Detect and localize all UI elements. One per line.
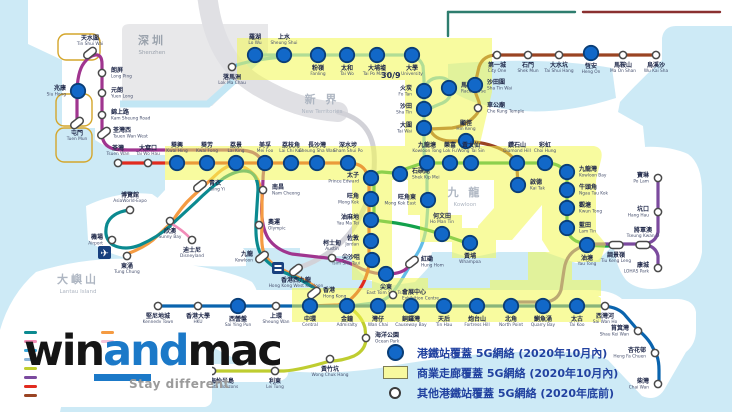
station-name-en: Shek Kip Mei xyxy=(412,175,440,181)
station-name-zh: 南昌 xyxy=(272,183,284,191)
logo-and: and xyxy=(103,326,187,376)
legend-label: 商業走廊覆蓋 5G網絡 (2020年10月內) xyxy=(417,365,618,381)
station-name-zh: 旺角 xyxy=(347,192,359,200)
station-name-en: Wong Tai Sin xyxy=(457,148,484,154)
station-name-zh: 香港西九龍 xyxy=(280,276,311,284)
station-name-zh: 火炭 xyxy=(400,84,412,92)
station-name-zh: 利東 xyxy=(268,377,281,385)
station-name-en: Admiralty xyxy=(337,322,358,328)
station-name-en: Sunny Bay xyxy=(159,234,182,240)
region-label: 新 界 xyxy=(305,92,340,106)
station-name-zh: 油麻地 xyxy=(341,213,359,221)
station-name-zh: 博覽館 xyxy=(121,191,139,199)
station-name-en: Lai King xyxy=(227,148,244,154)
station-name-zh: 石門 xyxy=(521,61,534,69)
station-name-zh: 大埔墟 xyxy=(368,64,386,72)
station-name-en: LOHAS Park xyxy=(624,269,650,275)
station-name-zh: 大圍 xyxy=(400,121,412,129)
station-name-en: Ngau Tau Kok xyxy=(579,191,609,197)
station-name-en: Ma On Shan xyxy=(610,68,636,74)
station-name-zh: 荃灣西 xyxy=(113,126,131,134)
station-name-en: Nam Cheong xyxy=(272,191,300,197)
station-name-zh: 中環 xyxy=(304,315,317,323)
station-name-zh: 第一城 xyxy=(487,61,506,69)
station-name-zh: 迪士尼 xyxy=(183,246,201,254)
logo-mac: mac xyxy=(188,326,281,376)
region-label-en: Kowloon xyxy=(454,202,477,208)
station-name-en: Tsim Sha Tsui xyxy=(331,261,360,267)
station-name-en: East Tsim Sha Tsui xyxy=(366,290,405,296)
station-name-zh: 寶琳 xyxy=(637,171,650,179)
station-name-zh: 將軍澳 xyxy=(634,226,653,234)
station-name-en: Prince Edward xyxy=(328,179,359,185)
station-name-zh: 金鐘 xyxy=(340,315,353,323)
station-name-en: Fortress Hill xyxy=(464,322,489,328)
line-colour-dash xyxy=(24,394,37,397)
station-name-zh: 坑口 xyxy=(637,205,649,213)
station-name-zh: 西營盤 xyxy=(229,315,248,323)
station-name-zh: 調景嶺 xyxy=(607,251,626,259)
station-name-en: Mong Kok East xyxy=(384,201,416,207)
station-name-en: Che Kung Temple xyxy=(487,109,525,115)
station-name-en: Fanling xyxy=(310,71,326,77)
station-name-zh: 大學 xyxy=(406,64,418,72)
station-name-zh: 牛頭角 xyxy=(579,183,597,191)
station-name-zh: 兆康 xyxy=(54,84,67,92)
station-name-zh: 天水圍 xyxy=(81,34,99,42)
station-name-zh: 樂富 xyxy=(444,141,456,149)
station-name-en: Tin Hau xyxy=(435,322,453,328)
region-label-en: Shenzhen xyxy=(138,50,166,56)
region-label-en: Lantau Island xyxy=(59,289,96,295)
station-name-en: Shau Kei Wan xyxy=(600,332,630,338)
station-name-en: Tai Koo xyxy=(569,322,585,328)
legend-row-other-stations: 其他港鐵站覆蓋 5G網絡 (2020年底前) xyxy=(381,384,618,401)
station-name-zh: 荃灣 xyxy=(112,144,124,152)
region-label-en: New Territories xyxy=(301,109,342,115)
station-name-en: Wan Chai xyxy=(368,322,388,328)
station-name-zh: 彩虹 xyxy=(538,141,551,149)
station-name-en: Hang Hau xyxy=(628,213,650,219)
station-name-zh: 佐敦 xyxy=(346,234,359,242)
station-name-zh: 深水埗 xyxy=(339,141,357,149)
station-name-en: Heng Fa Chuen xyxy=(613,354,646,360)
station-name-zh: 炮台山 xyxy=(467,315,486,323)
station-name-zh: 烏溪沙 xyxy=(647,61,665,69)
logo-win: win xyxy=(24,326,103,376)
station-name-en: Sheung Wan xyxy=(263,319,290,325)
station-name-en: Choi Hung xyxy=(534,148,557,154)
station-name-zh: 九龍塘 xyxy=(417,141,436,149)
station-name-zh: 馬鞍山 xyxy=(613,61,632,69)
station-name-zh: 青衣 xyxy=(209,179,221,187)
corridor-swatch-icon xyxy=(381,366,409,379)
station-name-zh: 香港 xyxy=(322,286,336,294)
station-name-zh: 長沙灣 xyxy=(308,141,326,149)
station-name-en: Kai Tak xyxy=(530,186,545,192)
covered-station-icon xyxy=(381,344,409,361)
station-name-zh: 啟德 xyxy=(530,178,542,186)
station-name-zh: 杏花邨 xyxy=(627,346,646,354)
station-name-en: Sheung Shui xyxy=(270,40,297,46)
station-name-en: Jordan xyxy=(344,242,359,248)
legend-row-corridor: 商業走廊覆蓋 5G網絡 (2020年10月內) xyxy=(381,364,618,381)
airport-plane-icon: ✈ xyxy=(98,246,111,260)
station-name-zh: 美孚 xyxy=(258,141,271,149)
station-name-zh: 香港大學 xyxy=(185,312,210,320)
station-name-zh: 元朗 xyxy=(111,86,123,94)
station-name-zh: 鰂魚涌 xyxy=(533,315,552,323)
region-label: 大嶼山 xyxy=(57,272,99,286)
legend-row-covered-stations: 港鐵站覆蓋 5G網絡 (2020年10月內) xyxy=(381,344,618,361)
region-label: 九 龍 xyxy=(447,185,483,199)
station-name-zh: 朗屏 xyxy=(111,66,123,74)
station-name-en: Tung Chung xyxy=(113,269,140,275)
station-name-en: North Point xyxy=(499,322,523,328)
station-name-en: Hung Hom xyxy=(421,263,444,269)
station-name-zh: 康城 xyxy=(636,261,649,269)
station-name-zh: 太古 xyxy=(570,315,583,323)
station-name-en: Shek Mun xyxy=(517,68,538,74)
station-name-zh: 葵興 xyxy=(170,141,183,149)
station-name-zh: 油塘 xyxy=(581,254,593,262)
station-name-zh: 柯士甸 xyxy=(323,239,341,247)
station-name-en: Tai Wo Hau xyxy=(135,151,160,157)
station-name-zh: 屯門 xyxy=(71,129,83,137)
station-name-en: Tsuen Wan xyxy=(106,151,130,157)
station-name-en: Sham Shui Po xyxy=(333,148,363,154)
station-name-en: Chai Wan xyxy=(629,385,650,391)
station-name-zh: 車公廟 xyxy=(487,101,505,109)
station-name-zh: 太子 xyxy=(346,171,359,179)
station-name-zh: 九龍 xyxy=(240,250,253,258)
station-name-en: Central xyxy=(302,322,318,328)
station-name-en: Po Lam xyxy=(633,179,649,185)
station-name-zh: 會展中心 xyxy=(402,288,426,296)
station-name-zh: 西灣河 xyxy=(596,312,614,320)
station-name-en: Tsing Yi xyxy=(208,187,225,193)
station-name-en: Ho Man Tin xyxy=(430,219,454,225)
station-name-en: Lo Wu xyxy=(248,40,261,46)
station-name-en: Whampoa xyxy=(459,259,481,265)
station-name-zh: 何文田 xyxy=(433,212,451,220)
station-name-en: Sha Tin xyxy=(396,110,412,116)
other-station-icon xyxy=(381,387,409,399)
station-name-en: Tai Wai xyxy=(396,129,412,135)
station-name-zh: 黃竹坑 xyxy=(321,365,339,373)
station-name-en: Tai Po Market xyxy=(362,71,392,77)
station-name-zh: 灣仔 xyxy=(371,315,384,323)
station-name-en: Siu Hong xyxy=(47,92,67,98)
station-name-zh: 尖沙咀 xyxy=(342,253,360,261)
station-name-en: Tai Wo xyxy=(339,71,354,77)
station-name-en: Kwai Hing xyxy=(166,148,188,154)
station-name-en: Kwai Fong xyxy=(196,148,218,154)
station-name-zh: 柴灣 xyxy=(636,377,649,385)
station-name-en: Sha Tin Wai xyxy=(487,86,512,92)
station-name-zh: 奧運 xyxy=(268,218,280,226)
station-name-en: Cheung Sha Wan xyxy=(299,148,336,154)
station-lam-tin: 藍田Lam Tin xyxy=(560,221,596,235)
station-name-en: University xyxy=(401,71,423,77)
station-name-zh: 沙田圍 xyxy=(487,78,505,86)
station-name-en: Lam Tin xyxy=(579,229,596,235)
station-name-zh: 北角 xyxy=(505,315,517,323)
station-name-zh: 海洋公園 xyxy=(375,331,399,339)
station-name-zh: 沙田 xyxy=(400,103,412,110)
station-name-en: Olympic xyxy=(268,226,286,232)
station-name-en: Airport xyxy=(88,241,103,247)
station-name-zh: 黃大仙 xyxy=(462,141,480,149)
station-name-en: Lok Fu xyxy=(443,148,457,154)
station-name-en: Tseung Kwan O xyxy=(626,233,660,239)
station-name-zh: 太和 xyxy=(340,64,353,72)
legend-label: 其他港鐵站覆蓋 5G網絡 (2020年底前) xyxy=(417,385,614,401)
station-name-zh: 羅湖 xyxy=(249,33,261,41)
station-name-zh: 藍田 xyxy=(579,221,591,229)
station-yau-ma-tei: 油麻地Yau Ma Tei xyxy=(336,213,378,227)
station-name-zh: 紅磡 xyxy=(421,255,433,263)
station-name-en: Disneyland xyxy=(180,253,204,259)
line-colour-dash xyxy=(24,376,37,379)
station-name-en: Yuen Long xyxy=(110,94,133,100)
station-name-zh: 欣澳 xyxy=(164,227,177,235)
svg-text:✈: ✈ xyxy=(100,249,108,260)
station-name-zh: 筲箕灣 xyxy=(611,324,629,332)
station-name-en: Wu Kai Sha xyxy=(644,68,669,74)
station-name-zh: 九龍灣 xyxy=(578,165,597,173)
station-name-en: Kowloon Bay xyxy=(579,173,607,179)
station-name-zh: 觀塘 xyxy=(579,201,591,209)
station-name-zh: 機場 xyxy=(91,233,103,241)
region-label: 深圳 xyxy=(138,33,166,47)
station-name-en: Wong Chuk Hang xyxy=(311,372,348,378)
station-name-zh: 銅鑼灣 xyxy=(402,315,420,323)
station-name-zh: 落馬洲 xyxy=(223,73,241,81)
station-name-en: Tai Shui Hang xyxy=(543,68,573,74)
station-name-zh: 黃埔 xyxy=(464,252,476,260)
mtr-5g-coverage-map: 深圳Shenzhen新 界New Territories九 龍Kowloon大嶼… xyxy=(0,0,732,412)
station-name-en: Lei Tung xyxy=(266,384,284,390)
station-name-en: Heng On xyxy=(582,69,601,75)
station-name-en: Tuen Mun xyxy=(66,136,88,142)
station-name-en: Mei Foo xyxy=(257,148,274,154)
station-name-en: Hin Keng xyxy=(456,126,475,132)
station-name-zh: 粉嶺 xyxy=(312,64,325,72)
station-name-en: Tsuen Wan West xyxy=(112,134,148,140)
station-name-en: Fo Tan xyxy=(398,92,412,98)
station-name-zh: 錦上路 xyxy=(111,108,130,116)
station-name-zh: 大窩口 xyxy=(139,144,157,152)
winandmac-logo: winandmac xyxy=(24,331,281,371)
station-name-en: Austin xyxy=(325,246,339,252)
station-name-en: City One xyxy=(488,68,507,74)
station-name-en: Kowloon Tong xyxy=(412,148,442,154)
station-name-en: Kam Sheung Road xyxy=(111,116,151,122)
station-name-zh: 尖東 xyxy=(380,283,392,291)
station-name-en: Tiu Keng Leng xyxy=(600,258,632,264)
station-name-zh: 荔枝角 xyxy=(281,141,300,149)
station-name-zh: 鑽石山 xyxy=(508,141,526,149)
station-name-zh: 上水 xyxy=(278,33,291,41)
station-name-en: Mong Kok xyxy=(338,200,359,206)
station-name-zh: 堅尼地城 xyxy=(146,312,170,320)
coverage-legend: 港鐵站覆蓋 5G網絡 (2020年10月內) 商業走廊覆蓋 5G網絡 (2020… xyxy=(381,344,618,401)
station-name-zh: 大水坑 xyxy=(550,61,568,69)
station-name-en: Hong Kong xyxy=(323,294,347,300)
station-name-zh: 旺角東 xyxy=(398,193,416,201)
station-name-en: Quarry Bay xyxy=(531,322,556,328)
station-name-en: Long Ping xyxy=(111,74,132,80)
station-name-zh: 顯徑 xyxy=(460,119,472,127)
station-name-zh: 天后 xyxy=(438,315,450,323)
station-name-en: Lok Ma Chau xyxy=(218,80,246,86)
station-name-en: Yau Ma Tei xyxy=(336,221,359,227)
station-name-en: Tin Shui Wai xyxy=(76,41,103,47)
station-name-en: Causeway Bay xyxy=(395,322,427,328)
station-name-en: Kwun Tong xyxy=(579,209,602,215)
legend-label: 港鐵站覆蓋 5G網絡 (2020年10月內) xyxy=(417,345,607,361)
station-name-zh: 荔景 xyxy=(229,141,242,149)
station-name-zh: 上環 xyxy=(270,312,283,320)
station-name-en: AsiaWorld-Expo xyxy=(113,198,147,204)
station-name-zh: 東涌 xyxy=(121,262,133,270)
station-name-en: Kowloon xyxy=(235,258,253,264)
line-colour-dash xyxy=(24,385,37,388)
station-name-en: Diamond Hill xyxy=(503,148,531,154)
west-kowloon-hsr-icon xyxy=(272,262,284,274)
station-name-zh: 葵芳 xyxy=(200,141,213,149)
logo-tagline: Stay different xyxy=(129,377,230,391)
station-name-zh: 恆安 xyxy=(584,62,597,70)
station-name-en: Yau Tong xyxy=(577,261,597,267)
